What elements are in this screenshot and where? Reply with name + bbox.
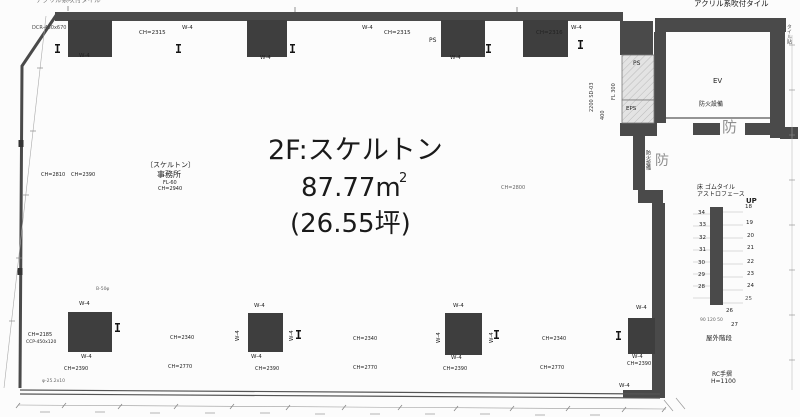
label-ccp-450: CCP-450x120: [26, 341, 56, 346]
label-eps-shaft: EPS: [626, 107, 636, 113]
label-ch2315-mid: CH=2315: [384, 31, 411, 37]
label-w4-sill-3: W-4: [450, 56, 461, 62]
note-top-right: アクリル系吹付タイル: [694, 0, 769, 8]
room-area-m2: 87.77m: [301, 175, 401, 201]
label-w4-c3-right: W-4: [490, 332, 496, 343]
label-dcr-450x670: DCR-450x670: [32, 26, 66, 31]
label-w4-c2-bottom: W-4: [251, 355, 262, 361]
label-w4-top-3: W-4: [571, 26, 582, 32]
label-w4-c3-top: W-4: [453, 304, 464, 310]
label-door-fl300: FL 300: [612, 83, 617, 100]
label-ch2770-bay3: CH=2770: [540, 366, 564, 371]
label-h1100: H=1100: [711, 379, 736, 385]
label-ch2340-bay2: CH=2340: [353, 337, 377, 342]
label-ch2390-c1: CH=2390: [64, 367, 88, 372]
label-ch2390-left-wall: CH=2390: [71, 173, 95, 178]
floor-plan: アクリル系吹付タイルアクリル系吹付タイルDCR-450x670CH=2315W-…: [0, 0, 800, 417]
label-w4-c3-bottom: W-4: [451, 356, 462, 362]
stair-step-25: 25: [745, 297, 752, 303]
label-w4-top-2: W-4: [362, 26, 373, 32]
label-ch2340-bay1: CH=2340: [170, 336, 194, 341]
label-ch2185: CH=2185: [28, 333, 52, 338]
stair-step-23: 23: [747, 272, 754, 278]
label-ch2770-bay1: CH=2770: [168, 365, 192, 370]
label-w4-c1-top: W-4: [79, 302, 90, 308]
label-ev: EV: [713, 78, 722, 85]
stair-step-18: 18: [745, 205, 752, 211]
label-ps-top: PS: [429, 38, 436, 44]
label-astroface: アストロフェース: [697, 192, 745, 198]
label-stair-dim: 90 120 50: [700, 319, 723, 324]
label-jimusho: 事務所: [157, 171, 181, 179]
label-w4-c2-left: W-4: [236, 330, 242, 341]
label-w4-c3-left: W-4: [437, 332, 443, 343]
label-b50: B-50φ: [96, 288, 109, 293]
label-w4-sill-1: W-4: [79, 54, 90, 60]
label-ch2810: CH=2810: [41, 173, 65, 178]
label-door-400: 400: [601, 110, 606, 120]
label-ch2315-left: CH=2315: [139, 31, 166, 37]
stair-step-33: 33: [699, 223, 706, 229]
label-w4-top-1: W-4: [182, 26, 193, 32]
label-door-2200-sd03: 2200 SD-03: [590, 82, 595, 112]
label-w4-c1-bottom: W-4: [81, 355, 92, 361]
room-area-m2-sup: 2: [399, 172, 407, 185]
label-w4-c4-corner: W-4: [619, 384, 630, 390]
stair-step-24: 24: [747, 284, 754, 290]
label-phi-25: φ-25.2x10: [42, 380, 65, 385]
stair-step-27: 27: [731, 323, 738, 329]
stair-step-34: 34: [698, 211, 705, 217]
stair-step-21: 21: [747, 246, 754, 252]
annotation-layer: アクリル系吹付タイルアクリル系吹付タイルDCR-450x670CH=2315W-…: [0, 0, 800, 417]
room-area-tsubo: (26.55坪): [290, 211, 411, 237]
room-title: 2F:スケルトン: [268, 137, 443, 164]
label-bouka-setsubi-ev: 防火設備: [699, 102, 723, 108]
label-skeleton-note: 〔スケルトン〕: [146, 162, 195, 169]
label-ch2390-c3: CH=2390: [443, 367, 467, 372]
label-ps-shaft: PS: [633, 61, 640, 67]
stair-step-28: 28: [698, 285, 705, 291]
label-bouka-setsubi-vert: 防火設備: [645, 150, 650, 170]
label-tile-vert: タイル貼: [786, 24, 791, 44]
label-w4-c4-bottom: W-4: [632, 355, 643, 361]
stair-step-20: 20: [747, 234, 754, 240]
label-ch2940: CH=2940: [158, 187, 182, 192]
label-ch2800: CH=2800: [501, 186, 525, 191]
stair-step-30: 30: [698, 261, 705, 267]
stair-step-26: 26: [726, 309, 733, 315]
stair-step-29: 29: [698, 273, 705, 279]
stair-step-32: 32: [699, 236, 706, 242]
stair-step-31: 31: [699, 248, 706, 254]
label-ch2390-c4: CH=2390: [627, 362, 651, 367]
label-w4-c2-right: W-4: [290, 330, 296, 341]
label-ch2390-c2: CH=2390: [255, 367, 279, 372]
stair-step-19: 19: [746, 221, 753, 227]
label-ch2316: CH=2316: [536, 31, 563, 37]
label-okugai-kaidan: 屋外階段: [706, 335, 732, 342]
label-w4-c2-top: W-4: [254, 304, 265, 310]
label-ch2340-bay3: CH=2340: [542, 337, 566, 342]
label-w4-c4-top: W-4: [636, 306, 647, 312]
stair-step-22: 22: [747, 260, 754, 266]
stamp-bou-2: 防: [655, 154, 669, 168]
label-w4-sill-2: W-4: [260, 56, 271, 62]
stamp-bou-1: 防: [722, 120, 737, 135]
label-ch2770-bay2: CH=2770: [353, 366, 377, 371]
note-top-left: アクリル系吹付タイル: [36, 0, 101, 4]
